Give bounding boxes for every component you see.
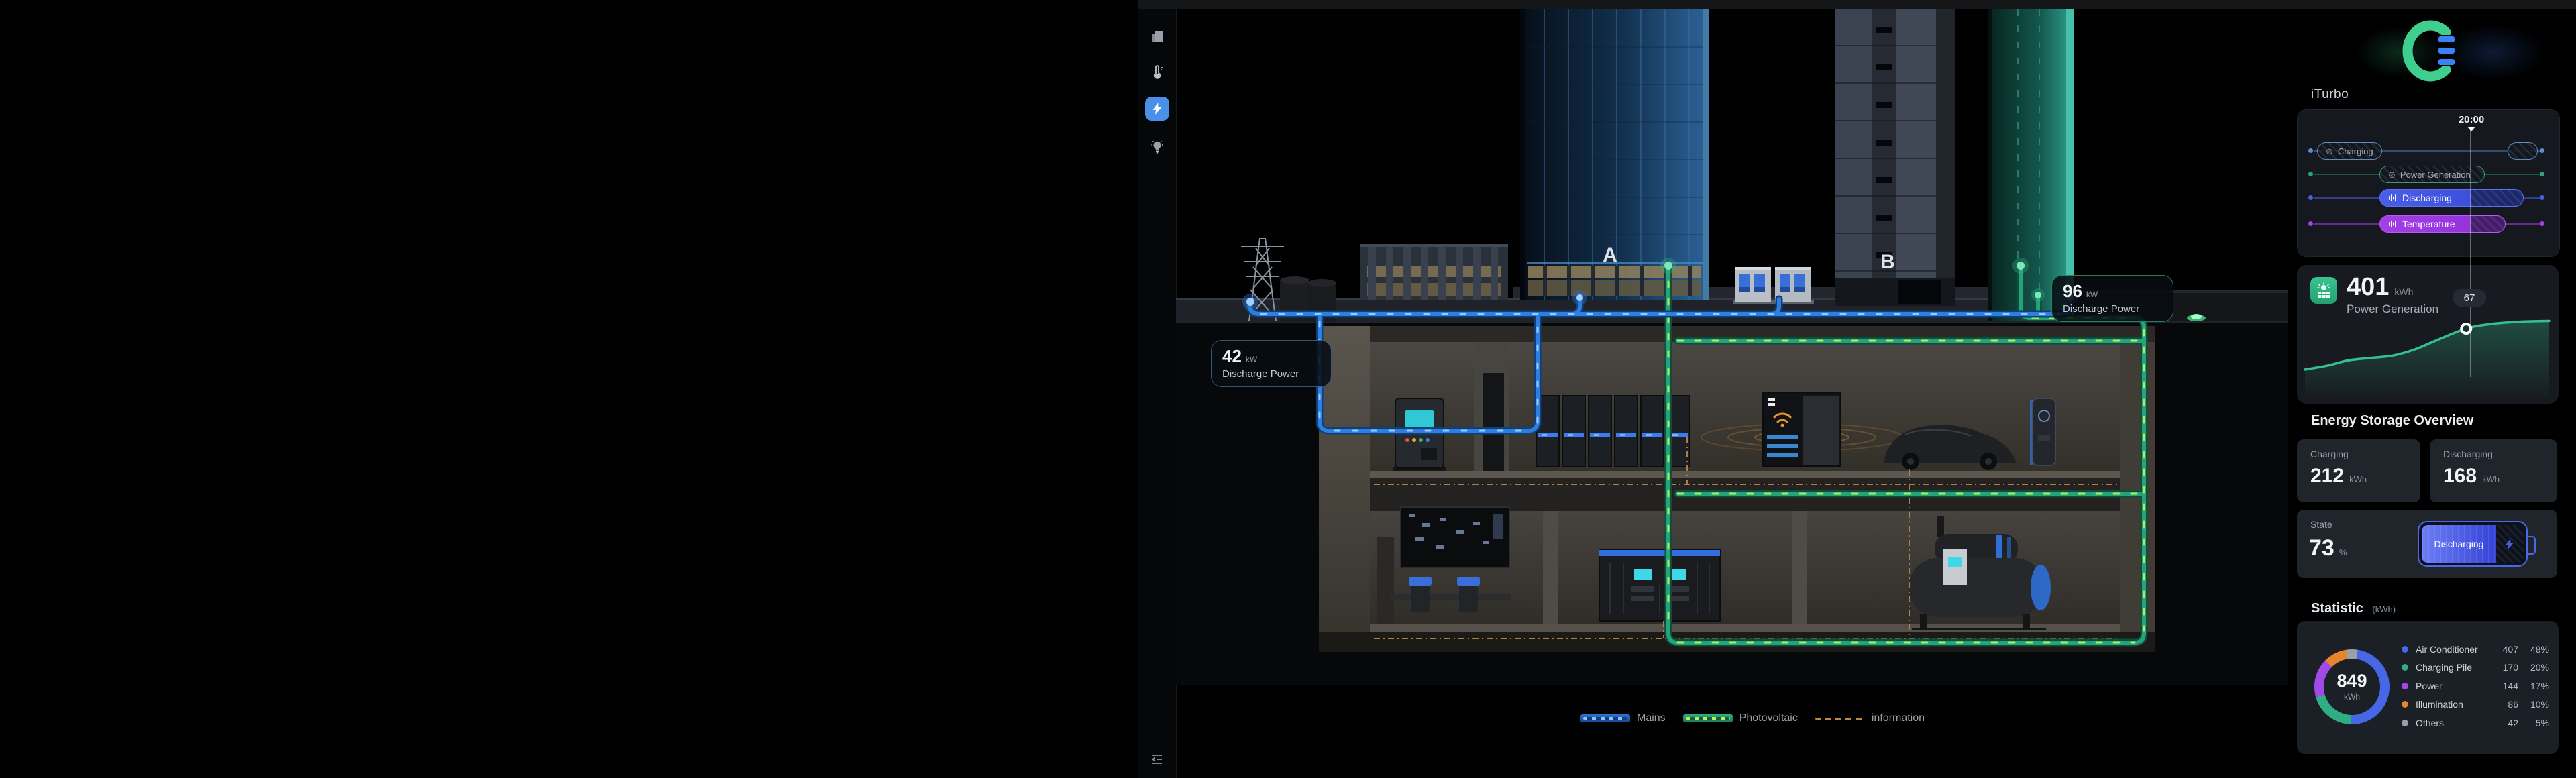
light-bulb-icon[interactable] [1145,134,1169,158]
statistic-unit: (kWh) [2372,604,2396,614]
legend-row-power: Power 144 17% [2402,677,2549,696]
legend-pct: 20% [2518,662,2549,673]
state-unit: % [2339,547,2347,557]
information-line-swatch [1815,718,1865,720]
discharging-value: 168 [2443,465,2477,488]
tooltip-value: 42 [1222,346,1242,366]
ev-charger [2030,398,2055,465]
timeline-pill-temperature[interactable]: Temperature [2379,215,2506,233]
teal-tower [1988,9,2074,321]
legend-value: 86 [2491,699,2518,710]
timeline-pill-charging[interactable]: ⊘ Charging [2317,142,2382,160]
tooltip-label: Discharge Power [1222,368,1320,380]
bolt-icon [2503,536,2516,552]
legend-pct: 10% [2518,699,2549,710]
timeline-time: 20:00 [2448,114,2495,125]
legend-value: 144 [2491,681,2518,691]
legend-label: Air Conditioner [2416,644,2491,655]
tower-a: A [1520,9,1709,300]
sidebar [1138,9,1177,778]
legend-label: information [1872,712,1925,724]
statistic-total-unit: kWh [2344,692,2360,702]
tower-b: B [1835,9,1955,306]
timeline-caret-icon[interactable] [2467,127,2475,131]
battery-empty [2496,525,2524,563]
charging-value: 212 [2310,465,2344,488]
low-rise-building [1360,244,1508,300]
track-endpoint[interactable] [2540,221,2544,226]
legend-item-photovoltaic: Photovoltaic [1683,712,1798,724]
track-endpoint[interactable] [2308,172,2313,176]
mains-pipe-swatch [1580,714,1630,722]
scene-legend: Mains Photovoltaic information [1580,712,1925,724]
legend-label: Mains [1637,712,1666,724]
energy-bolt-icon[interactable] [1145,97,1169,121]
pill-label: Power Generation [2400,170,2471,180]
legend-dot [2402,701,2408,708]
timeline-pill-power-generation[interactable]: ⊘ Power Generation [2379,166,2485,183]
tooltip-unit: kW [2086,290,2098,299]
photovoltaic-pipe-swatch [1683,714,1733,722]
discharge-power-tooltip-pv: 96kW Discharge Power [2051,275,2173,322]
legend-item-mains: Mains [1580,712,1666,724]
storage-section-title: Energy Storage Overview [2311,413,2473,429]
track-endpoint[interactable] [2540,148,2544,153]
statistic-legend: Air Conditioner 407 48% Charging Pile 17… [2402,640,2549,732]
legend-dot [2402,664,2408,671]
legend-label: Others [2416,718,2491,728]
power-generation-chart [2302,308,2553,396]
timeline-pill-discharging[interactable]: Discharging [2379,189,2524,207]
power-generation-card: 401 kWh Power Generation 67 [2297,265,2559,404]
discharge-power-tooltip-mains: 42kW Discharge Power [1211,340,1332,387]
legend-pct: 5% [2518,718,2549,728]
battery-c-logo [2395,13,2469,89]
legend-pct: 48% [2518,644,2549,655]
discharging-card: Discharging 168kWh [2430,439,2557,502]
waveform-icon [2388,219,2398,229]
legend-row-others: Others 42 5% [2402,714,2549,732]
legend-dot [2402,646,2408,653]
discharging-unit: kWh [2482,474,2500,484]
control-room [1390,507,1511,612]
power-generation-unit: kWh [2394,286,2413,297]
building-a-label: A [1603,244,1617,266]
charging-card: Charging 212kWh [2297,439,2420,502]
legend-row-air-conditioner: Air Conditioner 407 48% [2402,640,2549,659]
building-b-label: B [1880,251,1895,273]
legend-value: 407 [2491,644,2518,655]
brand-name: iTurbo [2311,87,2349,102]
solar-panel-icon [2310,277,2337,304]
pill-label: Charging [2338,146,2373,156]
chart-marker-value: 67 [2453,289,2486,307]
tooltip-value: 96 [2063,281,2082,301]
time-cursor-line[interactable] [2470,129,2471,377]
legend-pct: 17% [2518,681,2549,691]
battery-gauge: Discharging [2418,521,2528,567]
donut-center: 849 kWh [2324,659,2380,715]
pill-future-segment [2471,216,2506,232]
legend-label: Photovoltaic [1739,712,1798,724]
building-energy-scene: A B [1176,0,2288,778]
thermometer-icon[interactable] [1145,60,1169,85]
legend-item-information: information [1815,712,1925,724]
disabled-icon: ⊘ [2388,170,2396,179]
legend-value: 42 [2491,718,2518,728]
switchgear-cabinet [1599,550,1720,621]
track-endpoint[interactable] [2540,195,2544,200]
battery-status-label: Discharging [2434,539,2484,549]
battery-terminal [2528,536,2536,555]
charging-unit: kWh [2349,474,2367,484]
tooltip-unit: kW [1246,355,1257,364]
legend-label: Power [2416,681,2491,691]
statistic-total: 849 [2337,672,2367,690]
power-kiosk [1393,398,1446,471]
statistic-card: 849 kWh Air Conditioner 407 48% Charging… [2297,621,2559,754]
track-endpoint[interactable] [2308,221,2313,226]
state-card: State 73 % Discharging [2297,510,2557,578]
pill-future-segment [2471,190,2524,206]
charging-label: Charging [2310,449,2349,459]
statistic-title: Statistic [2311,601,2363,616]
legend-dot [2402,720,2408,726]
timeline-pill-charging-segment[interactable] [2508,142,2538,160]
legend-label: Illumination [2416,699,2491,710]
buildings-icon[interactable] [1145,24,1169,48]
legend-dot [2402,683,2408,689]
tooltip-label: Discharge Power [2063,303,2162,315]
track-endpoint[interactable] [2540,172,2544,176]
power-generation-value: 401 [2347,273,2389,302]
legend-row-illumination: Illumination 86 10% [2402,696,2549,714]
collapse-menu-icon[interactable] [1145,747,1169,771]
schedule-timeline-card: 20:00 ⊘ Charging ⊘ Power Generation Disc… [2297,109,2560,257]
track-endpoint[interactable] [2308,148,2313,153]
legend-value: 170 [2491,662,2518,673]
pill-label: Discharging [2402,192,2452,203]
state-value: 73 [2309,535,2334,561]
pill-label: Temperature [2402,219,2455,229]
battery-fill: Discharging [2422,525,2496,563]
waveform-icon [2388,193,2398,203]
disabled-icon: ⊘ [2326,147,2333,156]
legend-row-charging-pile: Charging Pile 170 20% [2402,659,2549,677]
track-endpoint[interactable] [2308,195,2313,200]
legend-label: Charging Pile [2416,662,2491,673]
state-label: State [2310,519,2332,530]
discharging-label: Discharging [2443,449,2493,459]
